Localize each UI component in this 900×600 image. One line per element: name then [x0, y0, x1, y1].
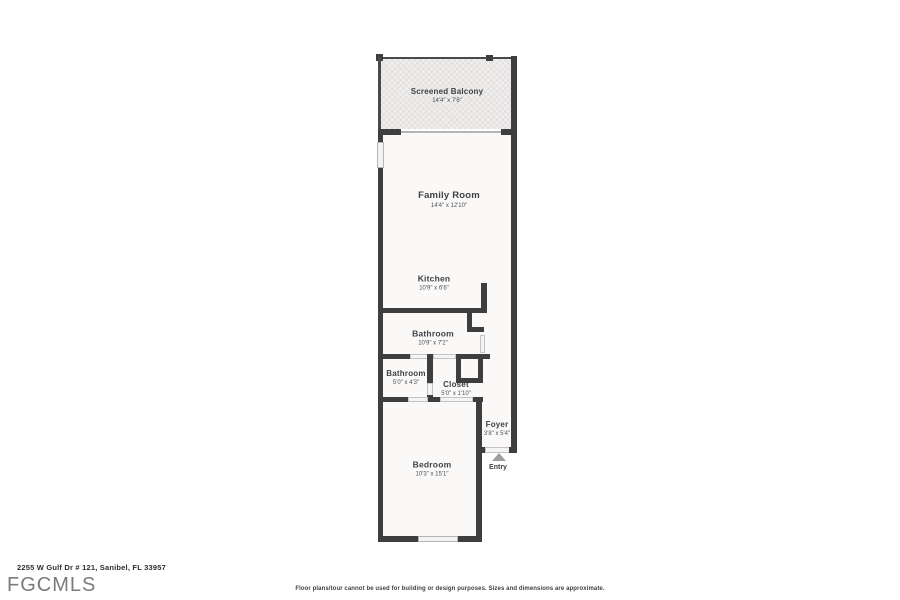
wall [378, 354, 410, 359]
entry-label: Entry [489, 464, 507, 471]
window [377, 142, 384, 168]
wall [486, 55, 493, 61]
room-name: Family Room [418, 190, 480, 202]
disclaimer-text: Floor plans/tour cannot be used for buil… [295, 586, 604, 592]
room-label-kitchen: Kitchen 10'9" x 6'6" [418, 273, 451, 292]
wall [378, 57, 517, 59]
room-name: Bedroom [413, 459, 452, 470]
wall [378, 397, 408, 402]
door [410, 354, 428, 359]
room-dimensions: 14'4" x 12'10" [418, 203, 480, 211]
wall [476, 397, 482, 542]
fgcmls-logo: FGCMLS [7, 574, 96, 597]
wall [427, 354, 433, 384]
wall [428, 397, 440, 402]
wall [509, 447, 517, 453]
window [418, 536, 458, 542]
room-dimensions: 5'0" x 4'3" [386, 380, 425, 388]
room-name: Kitchen [418, 273, 451, 284]
door [408, 397, 428, 402]
room-label-family-room: Family Room 14'4" x 12'10" [418, 190, 480, 210]
room-dimensions: 5'0" x 1'10" [441, 391, 471, 399]
room-label-bedroom: Bedroom 10'3" x 15'1" [413, 459, 452, 478]
wall [378, 129, 383, 541]
wall [458, 536, 482, 542]
wall [456, 354, 490, 359]
room-dimensions: 14'4" x 7'6" [411, 98, 484, 106]
floor-plan: Screened Balcony 14'4" x 7'6" Family Roo… [0, 0, 900, 600]
wall [481, 283, 487, 311]
wall [511, 56, 517, 453]
room-dimensions: 10'9" x 7'2" [412, 340, 454, 348]
sliding-door [401, 131, 501, 133]
entry-arrow-icon [492, 453, 506, 461]
door [480, 335, 485, 353]
wall [467, 327, 484, 332]
wall [378, 536, 418, 542]
room-label-foyer: Foyer 3'8" x 5'4" [484, 420, 510, 439]
room-label-closet: Closet 5'0" x 1'10" [441, 380, 471, 399]
room-name: Closet [441, 380, 471, 390]
room-dimensions: 3'8" x 5'4" [484, 431, 510, 439]
listing-address: 2255 W Gulf Dr # 121, Sanibel, FL 33957 [17, 563, 166, 572]
room-label-screened-balcony: Screened Balcony 14'4" x 7'6" [411, 87, 484, 106]
room-name: Screened Balcony [411, 87, 484, 97]
door [433, 354, 456, 359]
room-name: Bathroom [386, 369, 425, 379]
room-label-bathroom-1: Bathroom 10'9" x 7'2" [412, 328, 454, 347]
room-name: Bathroom [412, 328, 454, 339]
room-dimensions: 10'9" x 6'6" [418, 285, 451, 293]
wall [476, 447, 485, 453]
wall [378, 57, 381, 133]
room-name: Foyer [484, 420, 510, 430]
room-label-bathroom-2: Bathroom 5'0" x 4'3" [386, 369, 425, 388]
room-dimensions: 10'3" x 15'1" [413, 471, 452, 479]
